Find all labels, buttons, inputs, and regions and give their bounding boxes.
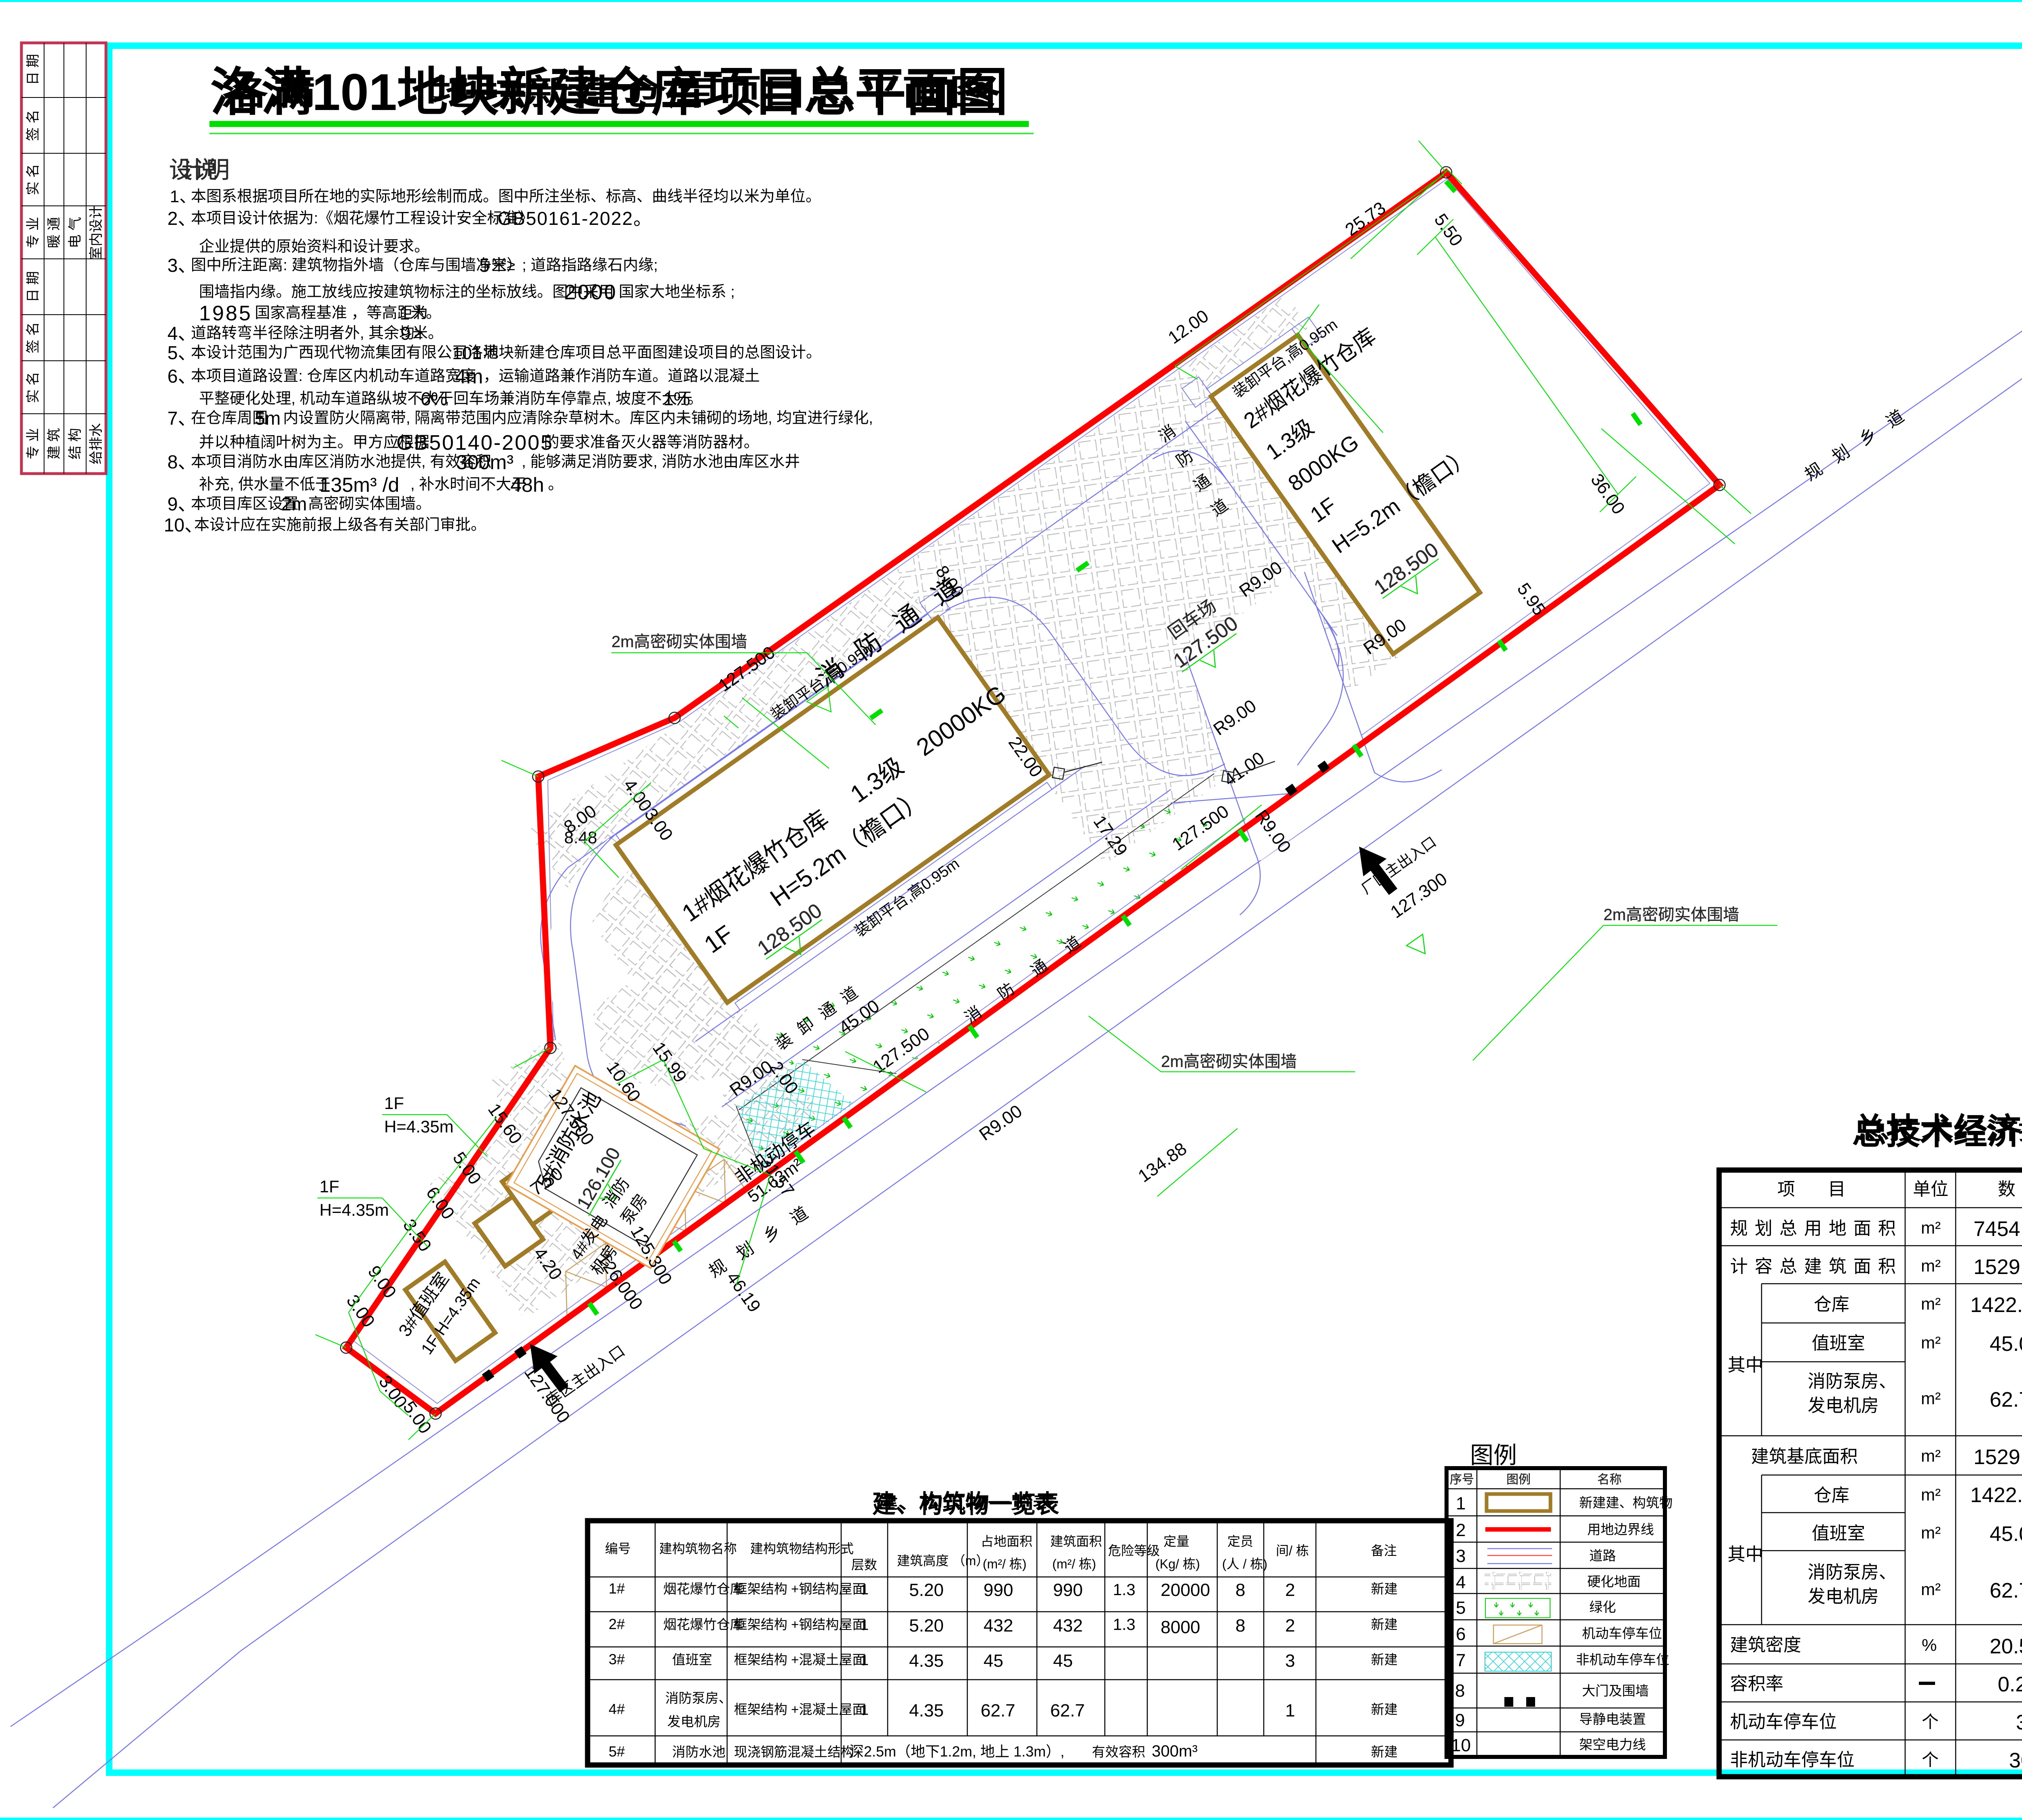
svg-text:烟花爆竹仓库: 烟花爆竹仓库 — [663, 1617, 743, 1632]
svg-text:设计说明: 设计说明 — [169, 157, 230, 183]
svg-text:62.7: 62.7 — [981, 1701, 1015, 1721]
svg-text:内设置防火隔离带, 隔离带范围内应清除杂草树木。库区内未铺砌: 内设置防火隔离带, 隔离带范围内应清除杂草树木。库区内未铺砌的场地, 均宜进行绿… — [283, 410, 873, 427]
svg-text:。: 。 — [687, 390, 703, 407]
svg-text:m²: m² — [1921, 1580, 1941, 1599]
svg-text:高密砌实体围墙。: 高密砌实体围墙。 — [308, 495, 431, 512]
svg-text:48h: 48h — [510, 474, 544, 496]
svg-text:硬化地面: 硬化地面 — [1587, 1574, 1641, 1589]
svg-text:本设计应在实施前报上级各有关部门审批。: 本设计应在实施前报上级各有关部门审批。 — [194, 516, 486, 533]
svg-text:建筑高度 （m）: 建筑高度 （m） — [897, 1553, 989, 1568]
svg-text:(m²/ 栋): (m²/ 栋) — [1052, 1557, 1096, 1571]
svg-text:新建: 新建 — [1371, 1702, 1398, 1717]
svg-text:层数: 层数 — [851, 1558, 877, 1572]
svg-text:2: 2 — [1456, 1520, 1466, 1540]
svg-text:总技术经济指标: 总技术经济指标 — [1857, 1118, 2022, 1144]
svg-text:45: 45 — [1053, 1651, 1073, 1671]
svg-text:给排水: 给排水 — [89, 423, 104, 464]
svg-text:H=4.35m: H=4.35m — [319, 1200, 389, 1219]
svg-text:%: % — [1922, 1636, 1937, 1655]
svg-text:值班室: 值班室 — [672, 1652, 712, 1667]
svg-text:m²: m² — [1921, 1523, 1941, 1542]
svg-text:个: 个 — [1922, 1712, 1939, 1731]
svg-text:1.3: 1.3 — [1113, 1616, 1136, 1634]
svg-text:4: 4 — [1456, 1572, 1466, 1592]
svg-text:框架结构 +混凝土屋面: 框架结构 +混凝土屋面 — [734, 1702, 865, 1717]
svg-text:5m: 5m — [255, 408, 281, 429]
svg-text:1: 1 — [1456, 1494, 1466, 1513]
svg-text:101: 101 — [452, 343, 482, 363]
svg-text:发电机房: 发电机房 — [1808, 1587, 1879, 1606]
svg-text:2: 2 — [1285, 1580, 1295, 1600]
svg-text:m²: m² — [1921, 1218, 1941, 1237]
svg-text:45.00: 45.00 — [1990, 1522, 2022, 1546]
svg-text:7: 7 — [1456, 1651, 1466, 1670]
svg-text:新建: 新建 — [1371, 1617, 1398, 1632]
svg-text:1F: 1F — [384, 1094, 404, 1113]
svg-text:本项目设计依据为:《烟花爆竹工程设计安全标准》: 本项目设计依据为:《烟花爆竹工程设计安全标准》 — [191, 210, 533, 227]
svg-text:项: 项 — [1777, 1179, 1795, 1199]
svg-text:m²: m² — [1921, 1256, 1941, 1275]
svg-text:4.35: 4.35 — [909, 1701, 944, 1721]
svg-text:专 业: 专 业 — [25, 428, 41, 459]
svg-text:6: 6 — [1456, 1624, 1466, 1644]
svg-text:2m高密砌实体围墙: 2m高密砌实体围墙 — [1161, 1053, 1297, 1071]
svg-text:m²: m² — [1921, 1485, 1941, 1504]
svg-text:1529.70: 1529.70 — [1973, 1445, 2022, 1469]
svg-text:62.70: 62.70 — [1990, 1388, 2022, 1412]
svg-text:实 名: 实 名 — [25, 372, 41, 403]
svg-text:用地边界线: 用地边界线 — [1587, 1522, 1654, 1537]
svg-text:非机动车停车位: 非机动车停车位 — [1576, 1652, 1669, 1667]
svg-text:2000: 2000 — [564, 281, 618, 304]
svg-text:m²: m² — [1921, 1446, 1941, 1465]
svg-text:框架结构 +钢结构屋面: 框架结构 +钢结构屋面 — [734, 1581, 865, 1596]
svg-text:道路转弯半径除注明者外, 其余均≥: 道路转弯半径除注明者外, 其余均≥ — [191, 325, 423, 342]
svg-text:其中: 其中 — [1728, 1355, 1763, 1375]
svg-text:GB50161-2022。: GB50161-2022。 — [497, 208, 653, 229]
svg-text:1: 1 — [1285, 1701, 1295, 1721]
svg-text:地块新建仓库项目总平面图建设项目的总图设计。: 地块新建仓库项目总平面图建设项目的总图设计。 — [483, 344, 821, 361]
svg-text:1422.00: 1422.00 — [1970, 1484, 2022, 1507]
svg-text:300m³: 300m³ — [1152, 1742, 1197, 1760]
svg-text:消防泵房、: 消防泵房、 — [1808, 1371, 1897, 1391]
svg-text:签 名: 签 名 — [25, 322, 41, 353]
svg-text:5#: 5# — [609, 1743, 625, 1760]
svg-text:9: 9 — [400, 323, 411, 344]
svg-text:1422.00: 1422.00 — [1970, 1293, 2022, 1317]
svg-text:新建: 新建 — [1371, 1652, 1398, 1667]
svg-text:米。: 米。 — [412, 325, 443, 342]
svg-text:(人 / 栋): (人 / 栋) — [1222, 1557, 1267, 1571]
svg-text:单位: 单位 — [1913, 1179, 1948, 1199]
svg-text:2: 2 — [1285, 1616, 1295, 1636]
svg-text:(Kg/ 栋): (Kg/ 栋) — [1155, 1557, 1200, 1571]
svg-text:m²: m² — [1921, 1389, 1941, 1408]
svg-text:发电机房: 发电机房 — [667, 1714, 721, 1729]
svg-text:地块新建仓库项目总平面图: 地块新建仓库项目总平面图 — [432, 73, 996, 112]
svg-text:30: 30 — [2009, 1749, 2022, 1772]
svg-text:目: 目 — [1828, 1179, 1846, 1199]
svg-text:建构筑物结构形式: 建构筑物结构形式 — [750, 1541, 854, 1556]
svg-text:建、构筑物一览表: 建、构筑物一览表 — [876, 1493, 1055, 1512]
svg-text:备注: 备注 — [1371, 1543, 1397, 1558]
svg-text:结 构: 结 构 — [68, 428, 83, 459]
svg-text:m²: m² — [1921, 1294, 1941, 1313]
svg-text:绿化: 绿化 — [1589, 1600, 1616, 1615]
svg-text:(m²/ 栋): (m²/ 栋) — [983, 1557, 1026, 1571]
svg-text:, 能够满足消防要求, 消防水池由库区水井: , 能够满足消防要求, 消防水池由库区水井 — [522, 453, 800, 470]
svg-text:室内设计: 室内设计 — [89, 205, 104, 260]
svg-text:7454.36: 7454.36 — [1973, 1217, 2022, 1241]
svg-text:新建: 新建 — [1371, 1581, 1398, 1596]
svg-text:数: 数 — [1998, 1179, 2016, 1199]
svg-text:道路: 道路 — [1589, 1548, 1616, 1563]
svg-text:值班室: 值班室 — [1812, 1524, 1865, 1543]
svg-text:45: 45 — [984, 1651, 1003, 1671]
svg-text:10: 10 — [1451, 1735, 1471, 1755]
svg-text:, 补水时间不大于: , 补水时间不大于 — [410, 476, 527, 493]
svg-text:消防水池: 消防水池 — [672, 1744, 725, 1759]
svg-text:本项目道路设置: 仓库区内机动车道路宽度: 本项目道路设置: 仓库区内机动车道路宽度 — [191, 368, 476, 385]
svg-text:围墙指内缘。施工放线应按建筑物标注的坐标放线。图中采用: 围墙指内缘。施工放线应按建筑物标注的坐标放线。图中采用 — [199, 284, 614, 301]
svg-text:其中: 其中 — [1728, 1545, 1763, 1564]
svg-text:1: 1 — [400, 303, 410, 324]
svg-text:300m³: 300m³ — [456, 451, 514, 474]
svg-text:占地面积: 占地面积 — [981, 1534, 1032, 1549]
svg-text:的要求准备灭火器等消防器材。: 的要求准备灭火器等消防器材。 — [544, 434, 759, 451]
svg-text:4m: 4m — [455, 365, 483, 388]
svg-text:H=4.35m: H=4.35m — [384, 1117, 454, 1136]
svg-text:米。: 米。 — [410, 305, 441, 322]
svg-text:62.70: 62.70 — [1990, 1579, 2022, 1602]
svg-text:实 名: 实 名 — [25, 164, 41, 195]
svg-text:3: 3 — [2016, 1711, 2022, 1734]
svg-text:企业提供的原始资料和设计要求。: 企业提供的原始资料和设计要求。 — [199, 238, 429, 255]
svg-text:1529.70: 1529.70 — [1973, 1255, 2022, 1279]
svg-text:8: 8 — [1455, 1681, 1465, 1701]
svg-text:建筑基底面积: 建筑基底面积 — [1751, 1447, 1858, 1467]
svg-text:62.7: 62.7 — [1050, 1701, 1085, 1721]
svg-text:8000: 8000 — [1161, 1617, 1200, 1637]
svg-text:1: 1 — [861, 1701, 869, 1718]
svg-text:4.35: 4.35 — [909, 1651, 944, 1671]
svg-text:1: 1 — [861, 1652, 869, 1668]
svg-text:仓库: 仓库 — [1814, 1486, 1849, 1505]
svg-text:建构筑物名称: 建构筑物名称 — [659, 1541, 737, 1556]
svg-text:容积率: 容积率 — [1730, 1674, 1783, 1694]
svg-text:2m: 2m — [281, 493, 307, 514]
svg-text:图例: 图例 — [1470, 1442, 1517, 1469]
svg-text:图中所注距离: 建筑物指外墙（仓库与围墙净空≥: 图中所注距离: 建筑物指外墙（仓库与围墙净空≥ — [191, 257, 515, 274]
svg-text:签 名: 签 名 — [25, 110, 41, 141]
svg-text:本图系根据项目所在地的实际地形绘制而成。图中所注坐标、标高、: 本图系根据项目所在地的实际地形绘制而成。图中所注坐标、标高、曲线半径均以米为单位… — [191, 188, 821, 205]
svg-text:图例: 图例 — [1506, 1473, 1531, 1486]
svg-text:平整硬化处理, 机动车道路纵坡不大于: 平整硬化处理, 机动车道路纵坡不大于 — [199, 390, 453, 407]
svg-text:8.48: 8.48 — [564, 828, 597, 847]
svg-text:洛满: 洛满 — [220, 73, 315, 112]
svg-text:专 业: 专 业 — [25, 217, 41, 248]
svg-text:1.3: 1.3 — [1113, 1581, 1136, 1599]
svg-text:。: 。 — [548, 476, 563, 493]
svg-text:非机动车停车位: 非机动车停车位 — [1730, 1750, 1855, 1770]
svg-text:机动车停车位: 机动车停车位 — [1582, 1626, 1662, 1641]
svg-text:3: 3 — [1456, 1546, 1466, 1566]
svg-text:大门及围墙: 大门及围墙 — [1582, 1683, 1649, 1698]
svg-text:日 期: 日 期 — [25, 54, 41, 85]
svg-text:机动车停车位: 机动车停车位 — [1730, 1712, 1837, 1732]
svg-text:框架结构 +混凝土屋面: 框架结构 +混凝土屋面 — [734, 1652, 865, 1667]
svg-text:补充, 供水量不低于: 补充, 供水量不低于 — [199, 476, 330, 493]
svg-text:个: 个 — [1922, 1750, 1939, 1769]
svg-text:计容总建筑面积: 计容总建筑面积 — [1730, 1257, 1903, 1276]
svg-text:8: 8 — [1235, 1580, 1245, 1600]
svg-text:国家大地坐标系 ;: 国家大地坐标系 ; — [619, 284, 735, 301]
svg-text:3#: 3# — [609, 1651, 625, 1668]
svg-text:2#: 2# — [609, 1616, 625, 1632]
svg-text:本项目消防水由库区消防水池提供, 有效容积: 本项目消防水由库区消防水池提供, 有效容积 — [191, 453, 491, 470]
svg-text:4#: 4# — [609, 1701, 625, 1717]
svg-text:1: 1 — [861, 1617, 869, 1633]
svg-text:5.20: 5.20 — [909, 1580, 944, 1600]
svg-text:危险等级: 危险等级 — [1108, 1543, 1160, 1558]
svg-text:1#: 1# — [609, 1580, 625, 1597]
svg-text:规划总用地面积: 规划总用地面积 — [1730, 1219, 1903, 1238]
svg-text:1: 1 — [861, 1581, 869, 1598]
svg-text:建筑面积: 建筑面积 — [1050, 1534, 1102, 1549]
svg-text:45.00: 45.00 — [1990, 1332, 2022, 1356]
svg-text:定员: 定员 — [1227, 1534, 1253, 1549]
svg-text:3: 3 — [1285, 1651, 1295, 1671]
svg-text:框架结构 +钢结构屋面: 框架结构 +钢结构屋面 — [734, 1617, 865, 1632]
svg-text:日 期: 日 期 — [25, 271, 41, 302]
svg-text:5: 5 — [1456, 1598, 1466, 1618]
svg-text:间/ 栋: 间/ 栋 — [1276, 1543, 1309, 1558]
svg-text:，运输道路兼作消防车道。道路以混凝土: ，运输道路兼作消防车道。道路以混凝土 — [483, 368, 760, 385]
svg-text:烟花爆竹仓库: 烟花爆竹仓库 — [663, 1581, 743, 1596]
svg-text:20000: 20000 — [1161, 1580, 1210, 1600]
svg-text:1%: 1% — [663, 388, 690, 409]
svg-text:消防泵房、: 消防泵房、 — [1808, 1562, 1897, 1582]
svg-text:序号: 序号 — [1450, 1473, 1474, 1486]
svg-text:名称: 名称 — [1597, 1473, 1622, 1486]
svg-text:值班室: 值班室 — [1812, 1333, 1865, 1353]
svg-text:建筑密度: 建筑密度 — [1730, 1635, 1801, 1655]
svg-text:1985: 1985 — [199, 302, 252, 325]
svg-text:消防泵房、: 消防泵房、 — [665, 1691, 732, 1706]
svg-text:新建建、构筑物: 新建建、构筑物 — [1579, 1495, 1673, 1510]
svg-text:432: 432 — [984, 1616, 1013, 1636]
svg-text:深2.5m（地下1.2m, 地上 1.3m）,: 深2.5m（地下1.2m, 地上 1.3m）, — [849, 1743, 1064, 1760]
svg-text:6%: 6% — [421, 388, 447, 409]
svg-text:0.21: 0.21 — [1998, 1673, 2022, 1696]
svg-text:m²: m² — [1921, 1333, 1941, 1352]
svg-text:5.20: 5.20 — [909, 1616, 944, 1636]
svg-text:发电机房: 发电机房 — [1808, 1396, 1879, 1416]
svg-text:990: 990 — [984, 1580, 1013, 1600]
svg-text:电 气: 电 气 — [68, 217, 83, 248]
svg-text:暖 通: 暖 通 — [47, 217, 62, 248]
svg-text:2m高密砌实体围墙: 2m高密砌实体围墙 — [1603, 906, 1739, 924]
svg-text:导静电装置: 导静电装置 — [1579, 1712, 1646, 1727]
svg-text:5: 5 — [479, 255, 490, 276]
svg-text:米）; 道路指路缘石内缘;: 米）; 道路指路缘石内缘; — [491, 257, 658, 274]
svg-text:135m³ /d: 135m³ /d — [319, 474, 399, 496]
svg-text:990: 990 — [1053, 1580, 1083, 1600]
svg-text:现浇钢筋混凝土结构: 现浇钢筋混凝土结构 — [734, 1744, 854, 1759]
svg-text:并以种植阔叶树为主。甲方应根据: 并以种植阔叶树为主。甲方应根据 — [199, 434, 429, 451]
svg-text:架空电力线: 架空电力线 — [1579, 1737, 1646, 1752]
svg-text:新建: 新建 — [1371, 1744, 1398, 1759]
svg-text:1F: 1F — [319, 1177, 339, 1196]
svg-text:8: 8 — [1235, 1616, 1245, 1636]
svg-text:定量: 定量 — [1163, 1534, 1189, 1549]
svg-text:建 筑: 建 筑 — [47, 428, 62, 459]
svg-text:, 回车场兼消防车停靠点, 坡度不大于: , 回车场兼消防车停靠点, 坡度不大于 — [445, 390, 692, 407]
svg-text:9: 9 — [1455, 1710, 1465, 1730]
svg-text:编号: 编号 — [605, 1541, 631, 1556]
svg-text:仓库: 仓库 — [1814, 1295, 1849, 1314]
svg-text:有效容积: 有效容积 — [1092, 1744, 1145, 1759]
svg-text:432: 432 — [1053, 1616, 1083, 1636]
svg-text:2m高密砌实体围墙: 2m高密砌实体围墙 — [611, 633, 747, 651]
svg-text:20.52: 20.52 — [1990, 1635, 2022, 1658]
